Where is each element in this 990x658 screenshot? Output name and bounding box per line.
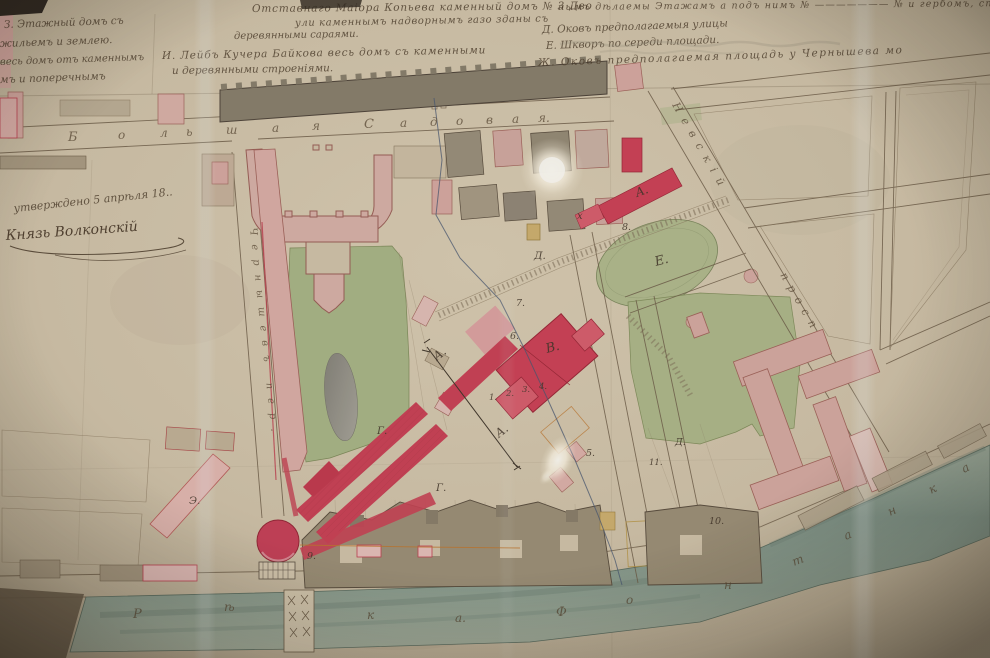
map-canvas: З. Этажный домъ съжильемъ и землею.весь … bbox=[0, 0, 990, 658]
vignette bbox=[0, 0, 990, 658]
glass-artifacts bbox=[0, 0, 990, 658]
historical-map-photo: З. Этажный домъ съжильемъ и землею.весь … bbox=[0, 0, 990, 658]
